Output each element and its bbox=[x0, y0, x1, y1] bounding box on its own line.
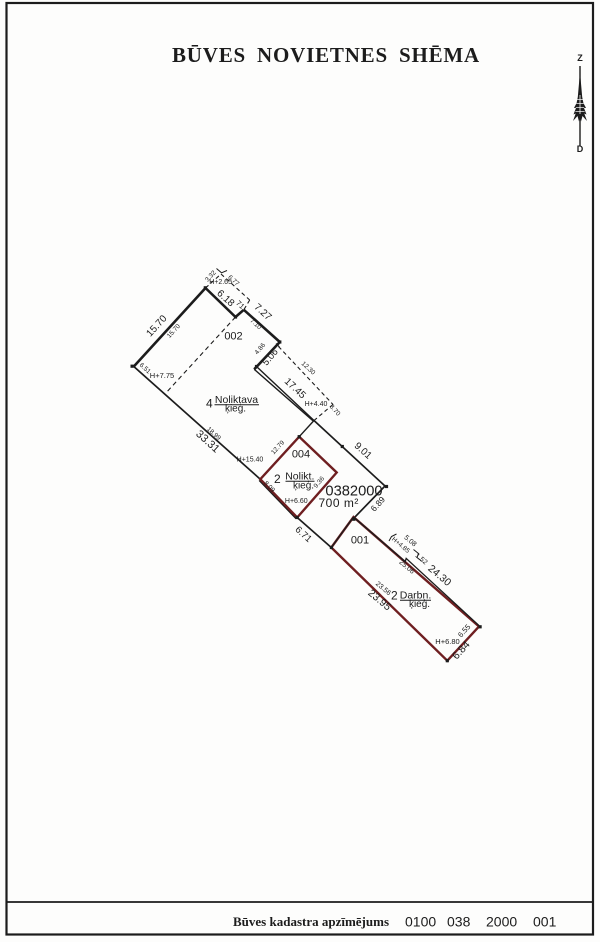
svg-text:2: 2 bbox=[274, 472, 281, 486]
svg-text:ķieģ.: ķieģ. bbox=[293, 479, 314, 492]
svg-text:001: 001 bbox=[351, 535, 369, 547]
svg-text:H+6.80: H+6.80 bbox=[435, 637, 459, 646]
svg-text:2000: 2000 bbox=[486, 914, 517, 930]
svg-text:0100: 0100 bbox=[405, 914, 436, 930]
svg-text:001: 001 bbox=[533, 914, 557, 930]
svg-text:H+2.65: H+2.65 bbox=[209, 279, 232, 286]
svg-text:H+6.60: H+6.60 bbox=[285, 498, 308, 505]
svg-text:BŪVES NOVIETNES SHĒMA: BŪVES NOVIETNES SHĒMA bbox=[172, 43, 480, 67]
svg-text:700 m²: 700 m² bbox=[319, 496, 359, 510]
svg-text:ķieģ.: ķieģ. bbox=[225, 402, 246, 415]
svg-text:002: 002 bbox=[224, 331, 242, 343]
svg-text:H+15.40: H+15.40 bbox=[237, 457, 264, 464]
svg-text:ķieģ.: ķieģ. bbox=[409, 597, 430, 610]
svg-text:038: 038 bbox=[447, 914, 471, 930]
svg-text:2: 2 bbox=[391, 589, 398, 603]
svg-text:H+7.75: H+7.75 bbox=[150, 371, 174, 380]
svg-text:Būves kadastra apzīmējums: Būves kadastra apzīmējums bbox=[233, 914, 389, 929]
svg-text:Z: Z bbox=[577, 53, 583, 63]
svg-text:H+4.40: H+4.40 bbox=[305, 401, 328, 408]
svg-text:D: D bbox=[577, 144, 584, 154]
svg-text:4: 4 bbox=[206, 397, 213, 411]
svg-text:004: 004 bbox=[292, 449, 310, 461]
